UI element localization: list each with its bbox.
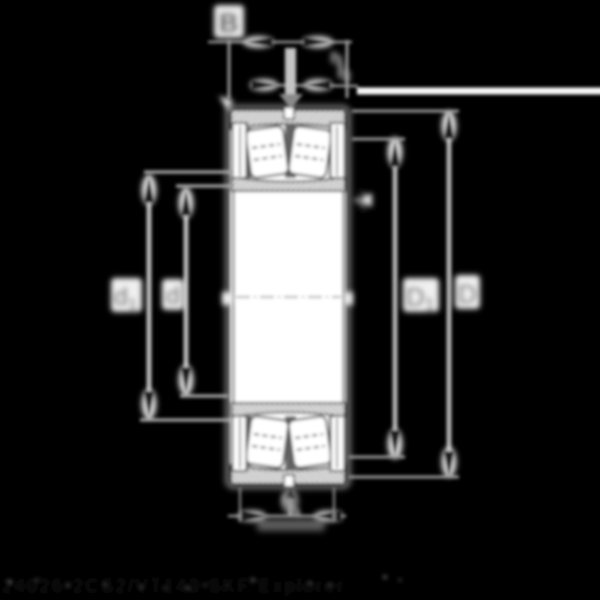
- svg-text:D: D: [458, 279, 477, 309]
- svg-text:d: d: [166, 282, 180, 310]
- svg-text:B: B: [219, 8, 239, 38]
- svg-text:24026-2CS2/VT143 SKF Explorer: 24026-2CS2/VT143 SKF Explorer: [2, 576, 346, 596]
